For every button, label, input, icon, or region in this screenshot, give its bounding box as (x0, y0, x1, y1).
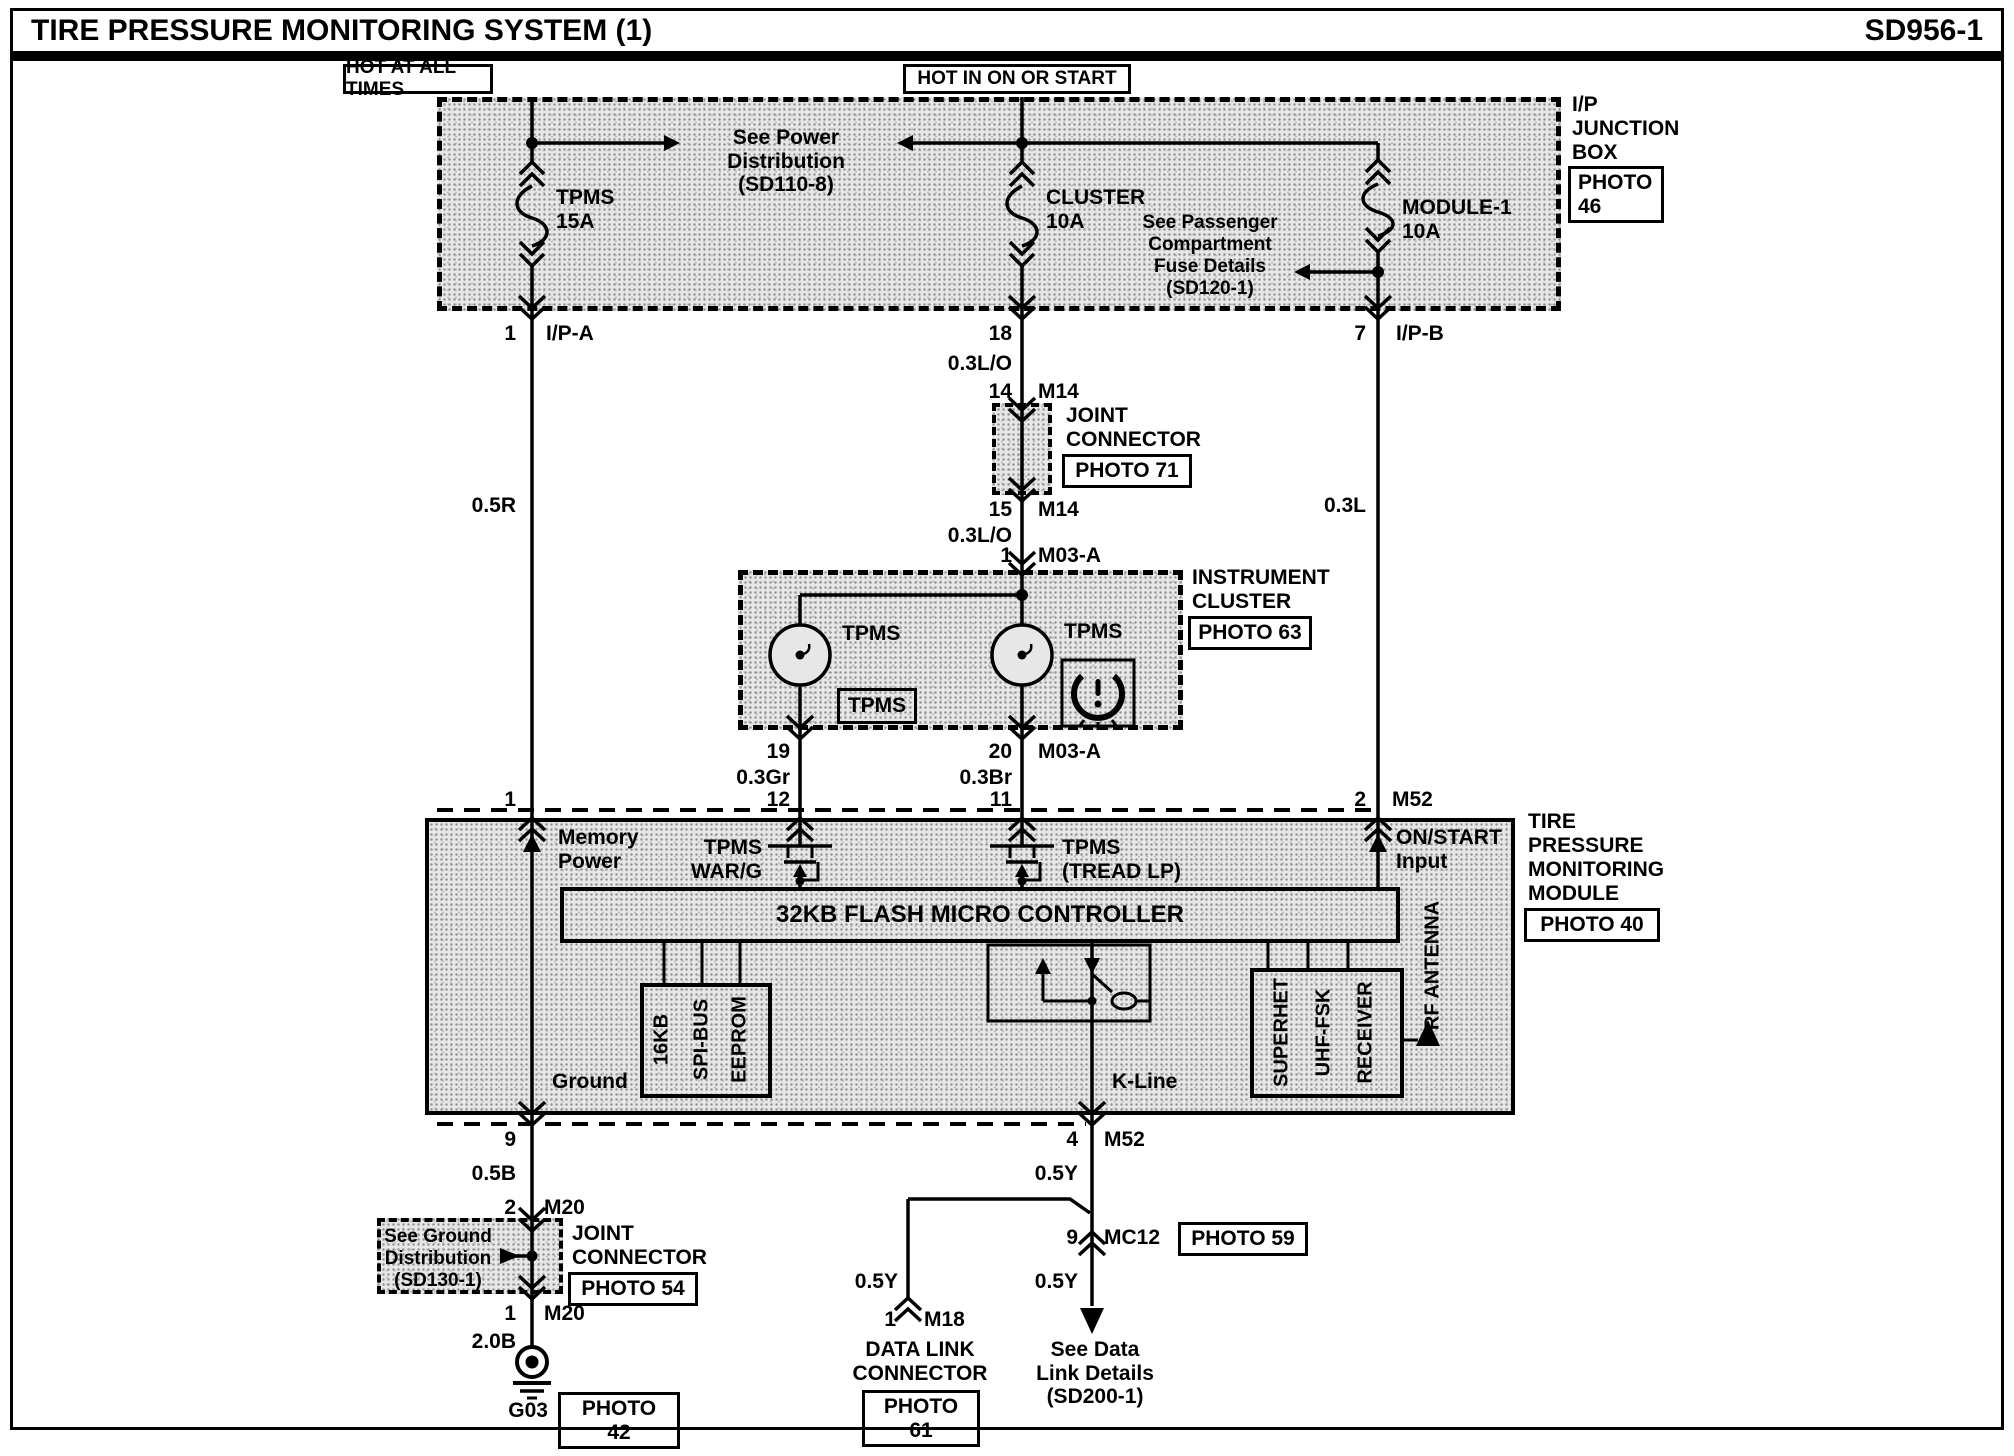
eeprom-label-1: 16KB (651, 970, 674, 1110)
tpms-tread-label-1: TPMS (1062, 836, 1120, 860)
fuse-tpms-name: TPMS (556, 186, 614, 210)
photo-40-ref: PHOTO 40 (1524, 908, 1660, 942)
fuse-module1-name: MODULE-1 (1402, 196, 1512, 220)
conn-m20-lower: M20 (544, 1302, 585, 1326)
see-ground-note: See Ground Distribution (SD130-1) (384, 1226, 492, 1292)
ground-label: Ground (552, 1070, 628, 1094)
pin-9-ground: 9 (440, 1128, 516, 1152)
see-ground-line3: (SD130-1) (384, 1270, 492, 1292)
wire-05y-3: 0.5Y (988, 1270, 1078, 1294)
pin-14: 14 (936, 380, 1012, 404)
micro-controller-label: 32KB FLASH MICRO CONTROLLER (776, 901, 1184, 929)
pin-1-m03a: 1 (936, 544, 1012, 568)
tpms-tread-label-2: (TREAD LP) (1062, 860, 1181, 884)
cluster-name-2: CLUSTER (1192, 590, 1291, 614)
pin-18: 18 (936, 322, 1012, 346)
conn-m18: M18 (924, 1308, 965, 1332)
joint-connector-m14-label-1: JOINT (1066, 404, 1128, 428)
wire-05y-2: 0.5Y (808, 1270, 898, 1294)
instrument-cluster-box (738, 570, 1183, 730)
photo-61-ref: PHOTO 61 (862, 1390, 980, 1447)
see-power-distribution-note: See Power Distribution (SD110-8) (688, 126, 884, 197)
joint-connector-m14-label-2: CONNECTOR (1066, 428, 1201, 452)
see-data-line2: Link Details (1032, 1362, 1158, 1386)
ip-box-name-2: JUNCTION (1572, 117, 1679, 141)
conn-m52-top: M52 (1392, 788, 1433, 812)
module-name-3: MONITORING (1528, 858, 1664, 882)
module-name-1: TIRE (1528, 810, 1576, 834)
memory-power-label-1: Memory (558, 826, 639, 850)
joint-connector-m20-label-1: JOINT (572, 1222, 634, 1246)
memory-power-label-2: Power (558, 850, 621, 874)
photo-46-ref: PHOTO 46 (1568, 166, 1664, 223)
ground-point-g03: G03 (488, 1399, 548, 1423)
see-passenger-line3: Fuse Details (1128, 256, 1292, 278)
conn-m14-upper: M14 (1038, 380, 1079, 404)
pin-2-m20: 2 (440, 1196, 516, 1220)
see-power-line1: See Power Distribution (688, 126, 884, 173)
dlc-line1: DATA LINK (845, 1338, 995, 1362)
micro-controller-box: 32KB FLASH MICRO CONTROLLER (560, 887, 1400, 943)
photo-54-ref: PHOTO 54 (568, 1272, 698, 1306)
onstart-label-1: ON/START (1396, 826, 1502, 850)
conn-mc12: MC12 (1104, 1226, 1160, 1250)
wire-03br: 0.3Br (922, 766, 1012, 790)
wire-05y-1: 0.5Y (988, 1162, 1078, 1186)
pin-20: 20 (936, 740, 1012, 764)
photo-46-line1: PHOTO (1578, 171, 1654, 195)
see-ground-line2: Distribution (384, 1248, 492, 1270)
hot-in-on-or-start-label: HOT IN ON OR START (903, 64, 1131, 94)
hot-at-all-times-label: HOT AT ALL TIMES (343, 64, 493, 94)
kline-label: K-Line (1112, 1070, 1177, 1094)
conn-ipb: I/P-B (1396, 322, 1444, 346)
fuse-cluster-name: CLUSTER (1046, 186, 1145, 210)
tpms-warg-label-2: WAR/G (690, 860, 762, 884)
receiver-label-2: UHF-FSK (1313, 960, 1336, 1106)
page-title: TIRE PRESSURE MONITORING SYSTEM (1) (31, 14, 652, 48)
pin-9-mc12: 9 (1002, 1226, 1078, 1250)
wire-20b: 2.0B (426, 1330, 516, 1354)
pin-4-m52: 4 (1002, 1128, 1078, 1152)
conn-m52-bottom: M52 (1104, 1128, 1145, 1152)
title-bar: TIRE PRESSURE MONITORING SYSTEM (1) SD95… (10, 8, 2004, 58)
rf-antenna-label: RF ANTENNA (1422, 866, 1445, 1066)
module-name-2: PRESSURE (1528, 834, 1644, 858)
tpms-warg-label-1: TPMS (690, 836, 762, 860)
pin-19: 19 (714, 740, 790, 764)
see-data-line3: (SD200-1) (1032, 1385, 1158, 1409)
wire-05r: 0.5R (446, 494, 516, 518)
conn-m03a-lower: M03-A (1038, 740, 1101, 764)
conn-m20-upper: M20 (544, 1196, 585, 1220)
cluster-name-1: INSTRUMENT (1192, 566, 1330, 590)
lamp-left-label: TPMS (842, 622, 900, 646)
photo-59-ref: PHOTO 59 (1178, 1222, 1308, 1256)
lamp-right-label: TPMS (1064, 620, 1122, 644)
see-data-line1: See Data (1032, 1338, 1158, 1362)
joint-connector-m20-label-2: CONNECTOR (572, 1246, 707, 1270)
wire-03gr: 0.3Gr (700, 766, 790, 790)
diagram-code: SD956-1 (1865, 14, 1983, 48)
conn-ipa: I/P-A (546, 322, 594, 346)
see-passenger-note: See Passenger Compartment Fuse Details (… (1128, 212, 1292, 300)
pin-7-ipb: 7 (1294, 322, 1366, 346)
photo-71-ref: PHOTO 71 (1062, 454, 1192, 488)
pin-1-m18: 1 (822, 1308, 896, 1332)
see-ground-line1: See Ground (384, 1226, 492, 1248)
photo-42-ref: PHOTO 42 (558, 1392, 680, 1449)
module-name-4: MODULE (1528, 882, 1619, 906)
hot-in-on-or-start-text: HOT IN ON OR START (917, 68, 1116, 90)
pin-15: 15 (936, 498, 1012, 522)
wire-03l: 0.3L (1296, 494, 1366, 518)
eeprom-label-2: SPI-BUS (691, 970, 714, 1110)
photo-63-ref: PHOTO 63 (1188, 616, 1312, 650)
eeprom-label-3: EEPROM (729, 970, 752, 1110)
conn-m14-lower: M14 (1038, 498, 1079, 522)
ip-box-name-3: BOX (1572, 141, 1618, 165)
see-passenger-line1: See Passenger (1128, 212, 1292, 234)
pin-1-m20: 1 (440, 1302, 516, 1326)
module-pin-12: 12 (714, 788, 790, 812)
receiver-label-1: SUPERHET (1271, 960, 1294, 1106)
wire-03lo-upper: 0.3L/O (922, 352, 1012, 376)
ip-box-name-1: I/P (1572, 93, 1598, 117)
conn-m03a-upper: M03-A (1038, 544, 1101, 568)
fuse-cluster-rating: 10A (1046, 210, 1085, 234)
module-pin-11: 11 (936, 788, 1012, 812)
receiver-label-3: RECEIVER (1355, 960, 1378, 1106)
dlc-line2: CONNECTOR (845, 1362, 995, 1386)
photo-46-line2: 46 (1578, 195, 1654, 219)
data-link-connector-label: DATA LINK CONNECTOR (845, 1338, 995, 1385)
see-power-line2: (SD110-8) (688, 173, 884, 197)
wire-05b: 0.5B (426, 1162, 516, 1186)
hot-at-all-times-text: HOT AT ALL TIMES (346, 57, 490, 101)
fuse-tpms-rating: 15A (556, 210, 595, 234)
see-passenger-line2: Compartment (1128, 234, 1292, 256)
see-data-link-note: See Data Link Details (SD200-1) (1032, 1338, 1158, 1409)
see-passenger-line4: (SD120-1) (1128, 278, 1292, 300)
fuse-module1-rating: 10A (1402, 220, 1441, 244)
module-pin-1: 1 (440, 788, 516, 812)
module-pin-2: 2 (1290, 788, 1366, 812)
joint-connector-m14-box (992, 403, 1052, 495)
pin-1-ipa: 1 (440, 322, 516, 346)
wiring-diagram-page: TIRE PRESSURE MONITORING SYSTEM (1) SD95… (0, 0, 2014, 1456)
tpms-telltale-text-box: TPMS (837, 688, 917, 724)
